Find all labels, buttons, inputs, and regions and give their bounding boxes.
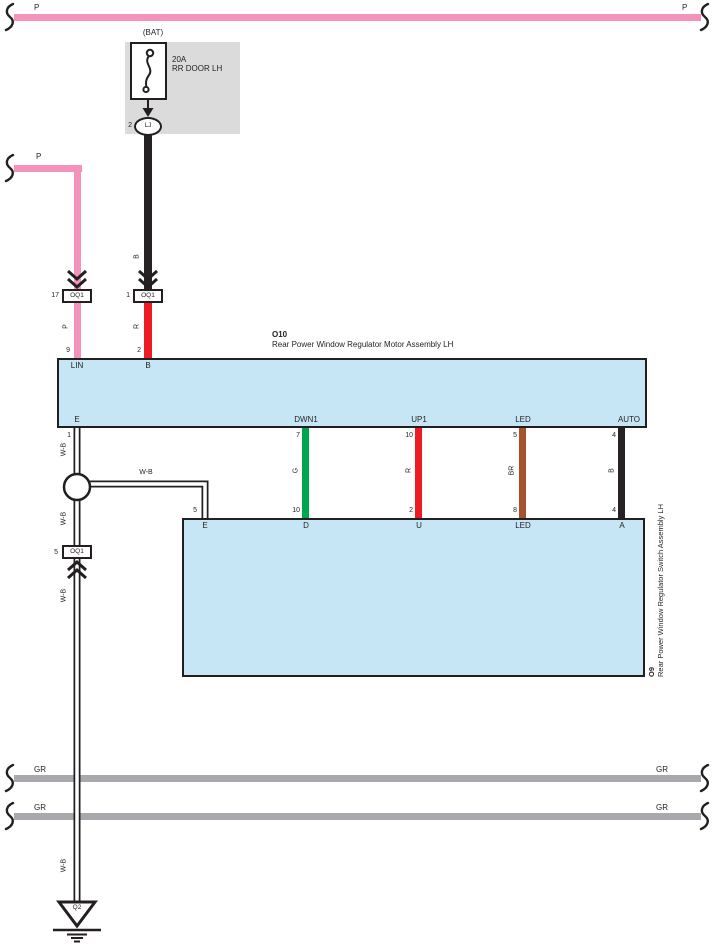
wiring-diagram: LJ OQ1 OQ1 OQ1 P P (BAT) 20A RR DOOR LH … xyxy=(0,0,715,952)
fuse-icon xyxy=(143,50,153,92)
connector-oq1-5: OQ1 xyxy=(62,545,92,559)
arrow-down-icon xyxy=(143,100,154,117)
wb-wire xyxy=(77,428,205,902)
symbol-overlay xyxy=(0,0,715,952)
ground-icon xyxy=(53,902,101,942)
connector-oq1-1: OQ1 xyxy=(133,289,163,303)
junction-icon xyxy=(64,474,90,500)
connector-oq1-17: OQ1 xyxy=(62,289,92,303)
break-icon xyxy=(6,4,708,829)
connector-lj: LJ xyxy=(134,117,162,136)
chevron-down-icon xyxy=(68,271,157,287)
